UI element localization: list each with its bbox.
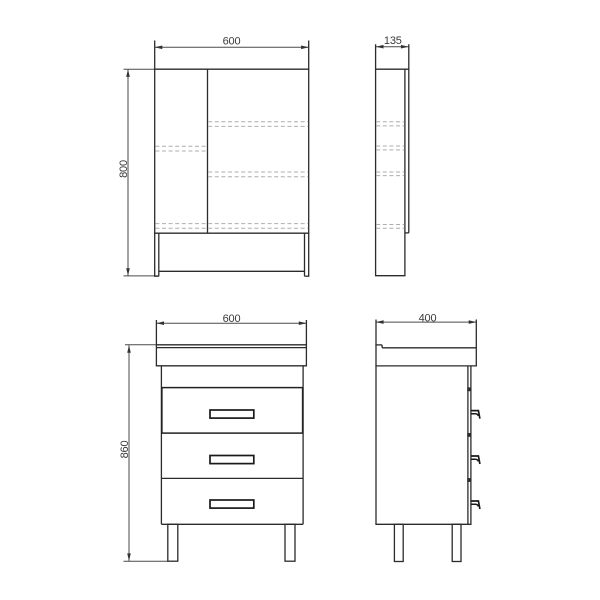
- svg-text:135: 135: [384, 35, 402, 47]
- svg-text:400: 400: [419, 312, 437, 324]
- svg-text:800: 800: [118, 160, 130, 178]
- svg-text:860: 860: [119, 441, 131, 459]
- svg-text:600: 600: [223, 36, 241, 48]
- svg-text:600: 600: [223, 313, 241, 325]
